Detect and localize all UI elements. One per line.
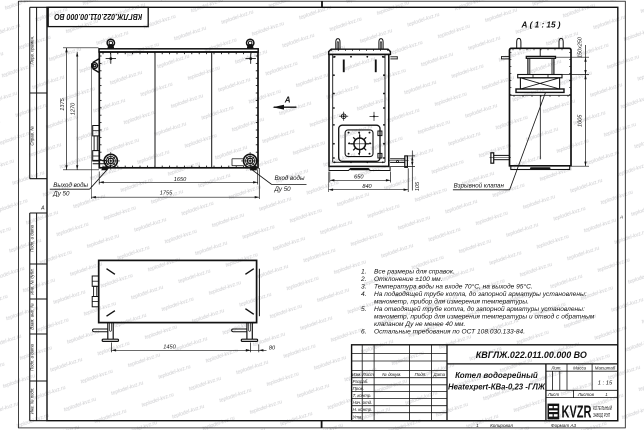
svg-text:КВГЛЖ.022.011.00.000 ВО: КВГЛЖ.022.011.00.000 ВО — [54, 12, 142, 22]
svg-text:2.: 2. — [360, 276, 367, 283]
svg-text:А: А — [619, 214, 623, 219]
svg-text:650: 650 — [354, 175, 364, 181]
svg-text:Копировал: Копировал — [490, 423, 513, 428]
svg-text:манометр, прибор для измерения: манометр, прибор для измерения температу… — [374, 297, 529, 305]
svg-text:Нач. отд.: Нач. отд. — [353, 400, 373, 405]
svg-text:Утв.: Утв. — [353, 415, 363, 420]
svg-text:1 : 15: 1 : 15 — [598, 381, 613, 387]
svg-text:ЗАВОД РЭП: ЗАВОД РЭП — [593, 413, 610, 419]
svg-text:1.: 1. — [361, 268, 367, 275]
svg-text:Листов: Листов — [577, 392, 595, 397]
svg-text:Изм.: Изм. — [352, 372, 361, 377]
svg-text:Разраб.: Разраб. — [353, 379, 369, 384]
svg-text:Подп. и дата: Подп. и дата — [30, 343, 35, 371]
svg-text:Температура воды на входе 70°С: Температура воды на входе 70°С, на выход… — [374, 282, 533, 290]
svg-text:1375: 1375 — [60, 97, 66, 110]
svg-text:Инв. № дубл.: Инв. № дубл. — [30, 268, 35, 294]
svg-text:Взрывной клапан: Взрывной клапан — [454, 182, 505, 189]
svg-text:1450: 1450 — [163, 344, 176, 350]
svg-text:Подп.: Подп. — [415, 372, 427, 377]
svg-text:Формат А3: Формат А3 — [551, 423, 577, 428]
svg-text:Лист: Лист — [361, 372, 374, 377]
svg-text:Ду 50: Ду 50 — [274, 186, 292, 193]
svg-text:На подводящей трубе котла, до: На подводящей трубе котла, до запорной а… — [374, 290, 587, 298]
svg-text:На отводящей трубе котла, до з: На отводящей трубе котла, до запорной ар… — [374, 305, 585, 313]
svg-text:Лист: Лист — [547, 392, 560, 397]
svg-text:3.: 3. — [361, 283, 367, 290]
svg-text:Ду 50: Ду 50 — [52, 191, 70, 198]
svg-text:80: 80 — [269, 346, 276, 352]
svg-text:Инв. № подл.: Инв. № подл. — [30, 388, 35, 415]
svg-text:Отклонение ±100 мм.: Отклонение ±100 мм. — [374, 276, 443, 283]
svg-text:1005: 1005 — [578, 114, 584, 127]
svg-text:Т. контр.: Т. контр. — [353, 393, 372, 398]
svg-text:Масса: Масса — [573, 366, 587, 371]
svg-text:4.: 4. — [361, 291, 367, 298]
svg-text:Перв. примен.: Перв. примен. — [30, 36, 35, 65]
svg-text:KVZR: KVZR — [562, 402, 592, 422]
svg-text:КОТЕЛЬНЫЙ: КОТЕЛЬНЫЙ — [593, 404, 612, 412]
svg-text:840: 840 — [362, 184, 372, 190]
svg-text:Остальные требования по ОСТ 10: Остальные требования по ОСТ 108.030.133-… — [374, 327, 525, 335]
svg-text:Справ. №: Справ. № — [30, 126, 35, 146]
svg-text:№ докум.: № докум. — [382, 372, 401, 377]
svg-text:А ( 1 : 15 ): А ( 1 : 15 ) — [521, 21, 561, 30]
svg-text:105: 105 — [415, 181, 421, 191]
svg-text:Подп. и дата: Подп. и дата — [30, 224, 35, 252]
svg-text:Н. контр.: Н. контр. — [353, 407, 373, 412]
svg-text:клапаном Ду не менее 40 мм.: клапаном Ду не менее 40 мм. — [374, 321, 466, 328]
svg-text:150х250: 150х250 — [577, 37, 583, 58]
svg-text:Пров.: Пров. — [353, 386, 365, 391]
svg-text:Взам. инв. №: Взам. инв. № — [30, 303, 35, 330]
svg-text:Heatexpert-КВа-0,23 -ГЛЖ: Heatexpert-КВа-0,23 -ГЛЖ — [448, 382, 546, 391]
svg-text:Котел водогрейный: Котел водогрейный — [455, 371, 538, 380]
svg-text:Масштаб: Масштаб — [595, 366, 616, 371]
svg-text:Вход воды: Вход воды — [275, 175, 305, 182]
svg-text:1650: 1650 — [174, 177, 187, 183]
svg-text:Дата: Дата — [433, 372, 446, 377]
svg-text:5.: 5. — [361, 306, 367, 313]
svg-text:манометр, прибор для измерения: манометр, прибор для измерения температу… — [374, 312, 595, 320]
svg-text:А: А — [284, 96, 291, 105]
svg-text:1755: 1755 — [160, 190, 173, 196]
svg-text:Все размеры для справок.: Все размеры для справок. — [374, 267, 455, 275]
svg-text:Лит.: Лит. — [550, 366, 561, 371]
svg-text:А: А — [40, 205, 45, 211]
svg-text:6.: 6. — [361, 328, 367, 335]
svg-text:Выход воды: Выход воды — [53, 182, 88, 189]
svg-text:КВГЛЖ.022.011.00.000 ВО: КВГЛЖ.022.011.00.000 ВО — [476, 350, 587, 360]
svg-text:1270: 1270 — [70, 102, 76, 115]
